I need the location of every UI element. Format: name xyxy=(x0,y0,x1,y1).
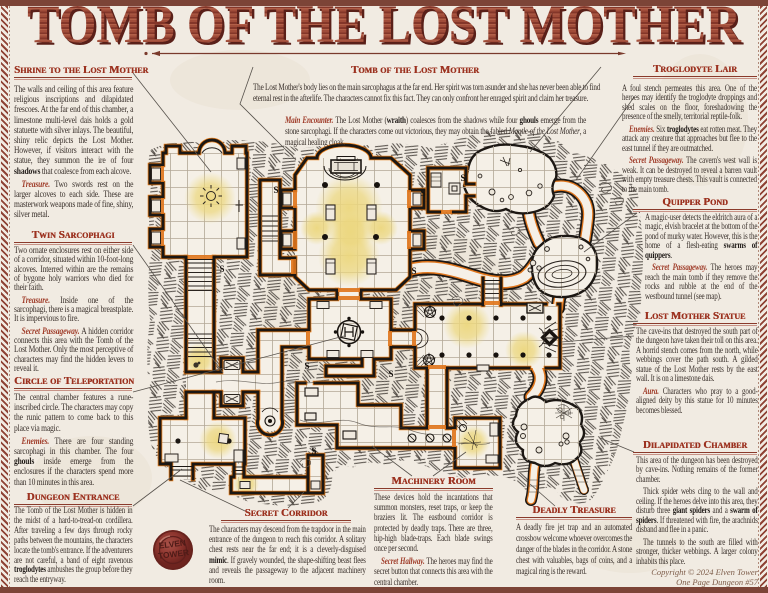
svg-text:S: S xyxy=(420,188,425,198)
svg-text:S: S xyxy=(219,264,224,274)
svg-text:S: S xyxy=(388,369,393,379)
svg-text:S: S xyxy=(460,173,465,183)
svg-text:S: S xyxy=(273,185,278,195)
svg-text:S: S xyxy=(304,361,309,371)
svg-text:S: S xyxy=(411,266,416,276)
svg-text:S: S xyxy=(311,446,316,456)
